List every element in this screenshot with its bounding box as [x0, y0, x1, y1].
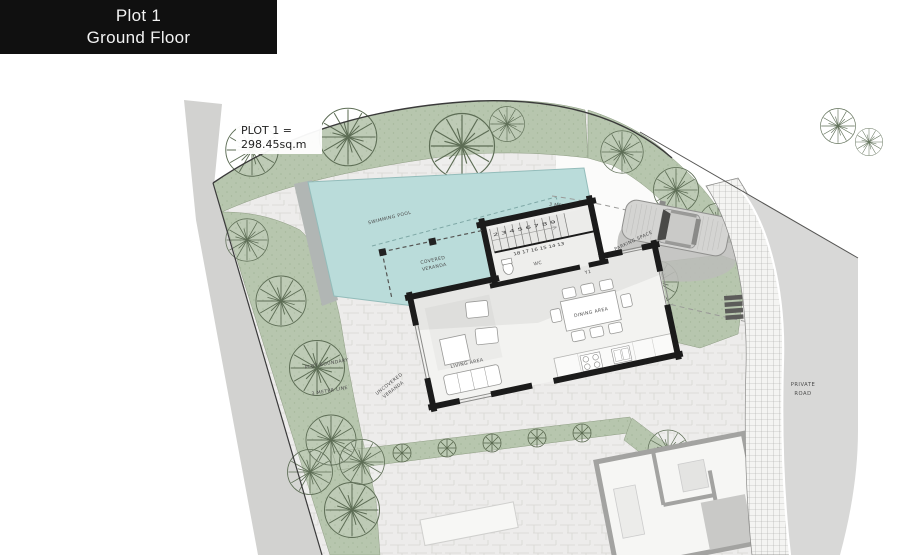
tree: [821, 109, 856, 144]
dining-chair: [571, 330, 586, 342]
plot-label-line2: 298.45sq.m: [241, 138, 306, 151]
dining-chair: [550, 308, 562, 323]
dining-chair: [599, 279, 614, 291]
plot-label-box: PLOT 1 = 298.45sq.m: [236, 120, 322, 154]
private-road-label-2: ROAD: [794, 391, 811, 397]
coffee-table: [440, 334, 471, 365]
private-road-label-1: PRIVATE: [791, 382, 816, 388]
dining-chair: [620, 293, 632, 308]
dining-chair: [589, 326, 604, 338]
tree: [855, 128, 883, 156]
dining-chair: [562, 287, 577, 299]
dining-chair: [608, 322, 623, 334]
plot-label-line1: PLOT 1 =: [241, 124, 292, 137]
armchair: [465, 300, 489, 318]
armchair: [475, 327, 499, 345]
dining-chair: [580, 283, 595, 295]
site-plan: SWIMMING POOL 3 METER LINE PARKING SPACE…: [0, 0, 911, 555]
